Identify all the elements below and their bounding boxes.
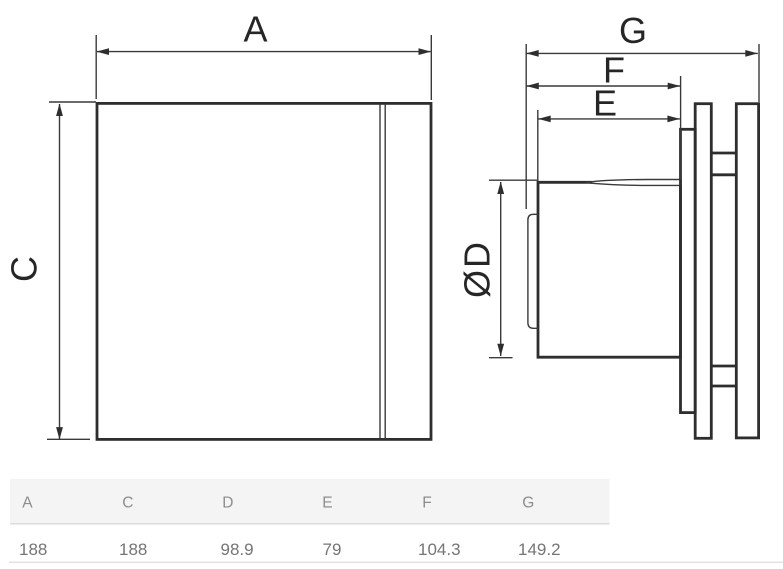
svg-text:D: D — [222, 495, 233, 512]
svg-text:C: C — [3, 256, 44, 282]
svg-text:F: F — [422, 495, 431, 512]
svg-text:E: E — [593, 83, 617, 124]
svg-text:104.3: 104.3 — [418, 540, 461, 559]
svg-text:149.2: 149.2 — [518, 540, 561, 559]
svg-text:A: A — [22, 495, 33, 512]
svg-text:188: 188 — [119, 540, 147, 559]
svg-text:C: C — [122, 495, 133, 512]
svg-text:A: A — [243, 9, 267, 50]
svg-text:G: G — [619, 10, 647, 51]
svg-text:ØD: ØD — [456, 240, 497, 298]
svg-text:G: G — [522, 495, 534, 512]
svg-text:188: 188 — [19, 540, 47, 559]
svg-text:79: 79 — [323, 540, 342, 559]
svg-text:98.9: 98.9 — [221, 540, 254, 559]
svg-text:E: E — [322, 495, 332, 512]
